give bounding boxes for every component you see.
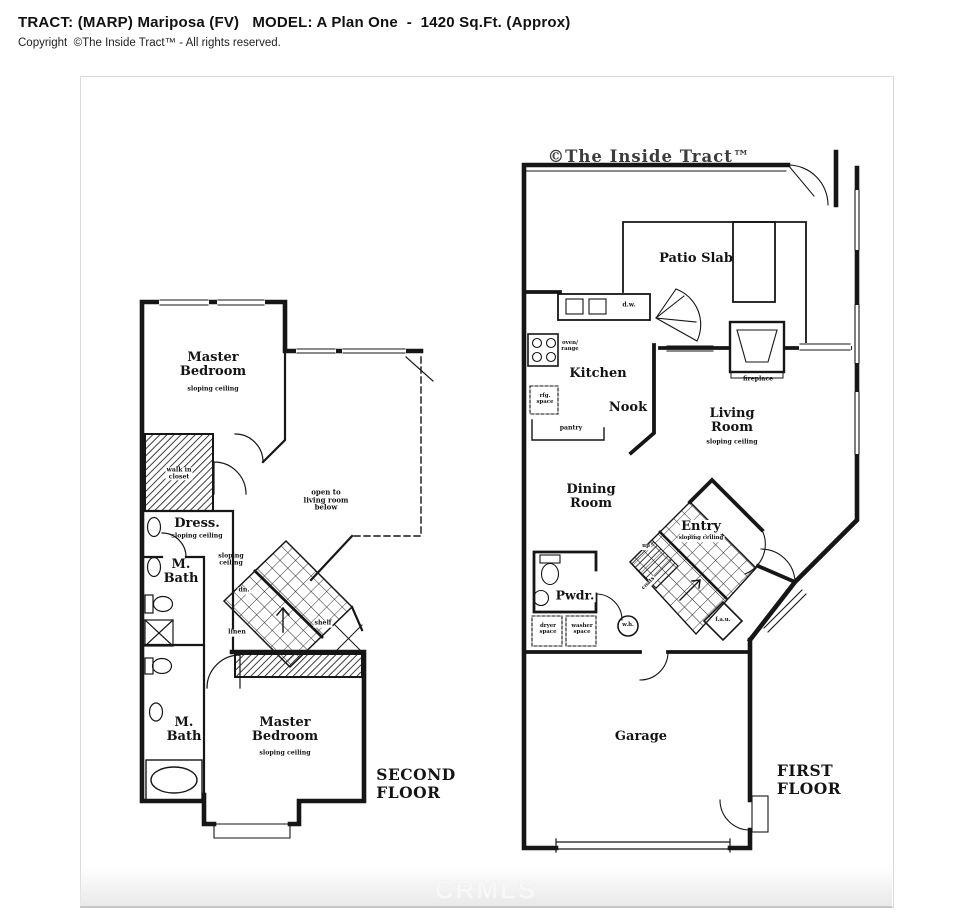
label-living-room-sloping: sloping ceiling — [706, 440, 757, 447]
label-fireplace: fireplace — [743, 377, 773, 384]
label-living-room: Living Room — [709, 407, 754, 435]
label-rfg-space: rfg. space — [535, 394, 554, 406]
label-first-floor: FIRST FLOOR — [777, 762, 841, 798]
label-fau: f.a.u. — [715, 618, 730, 624]
label-water-heater: w.h. — [622, 623, 634, 629]
label-linen: linen — [227, 630, 247, 637]
label-hall-sloping-ceiling: sloping ceiling — [218, 553, 243, 566]
footer-gradient-band: CRMLS — [80, 866, 892, 908]
label-powder-room: Pwdr. — [555, 588, 596, 602]
shelf-brace — [335, 625, 362, 652]
kitchen-counter-sink — [558, 294, 650, 320]
label-walk-in-closet: walk in closet — [166, 467, 193, 480]
label-nook: Nook — [609, 401, 647, 415]
crmls-watermark: CRMLS — [435, 875, 537, 906]
label-garage: Garage — [615, 730, 667, 744]
label-dryer-space: dryer space — [539, 624, 556, 636]
second-floor-open-to-below-dashes — [352, 357, 433, 536]
label-master-bedroom-upper: Master Bedroom — [180, 351, 246, 379]
label-entry-sloping: sloping ceiling — [678, 536, 725, 542]
label-entry: Entry — [680, 520, 722, 534]
label-master-bedroom-lower: Master Bedroom — [252, 716, 318, 744]
floor-plan-page: TRACT: (MARP) Mariposa (FV) MODEL: A Pla… — [0, 0, 969, 915]
label-kitchen: Kitchen — [569, 367, 626, 381]
powder-room — [534, 552, 623, 620]
label-dining-room: Dining Room — [566, 483, 615, 511]
garage-side-door — [720, 796, 768, 832]
nook-fan-door — [656, 289, 701, 341]
label-up: up — [641, 544, 651, 550]
label-washer-space: washer space — [571, 624, 592, 636]
label-shelf: shelf — [314, 621, 333, 628]
label-master-bedroom-upper-sloping: sloping ceiling — [187, 387, 238, 394]
label-m-bath-lower: M. Bath — [167, 716, 202, 744]
inside-tract-watermark: ©The Inside Tract™ — [548, 148, 751, 166]
label-oven-range: oven/ range — [560, 341, 579, 353]
stove — [528, 334, 558, 366]
garage-door — [556, 839, 730, 852]
label-dress-sloping: sloping ceiling — [171, 534, 222, 541]
label-second-floor: SECOND FLOOR — [376, 766, 455, 802]
label-dn: dn. — [238, 588, 251, 595]
label-patio-slab: Patio Slab — [659, 252, 733, 266]
label-pantry: pantry — [559, 426, 584, 433]
label-dishwasher: d.w. — [622, 303, 635, 310]
label-open-to-below: open to living room below — [304, 489, 349, 512]
label-master-bedroom-lower-sloping: sloping ceiling — [259, 751, 310, 758]
fireplace — [730, 322, 784, 378]
label-m-bath-upper: M. Bath — [164, 558, 199, 586]
gate-door — [788, 165, 828, 205]
label-dress: Dress. — [174, 517, 220, 531]
